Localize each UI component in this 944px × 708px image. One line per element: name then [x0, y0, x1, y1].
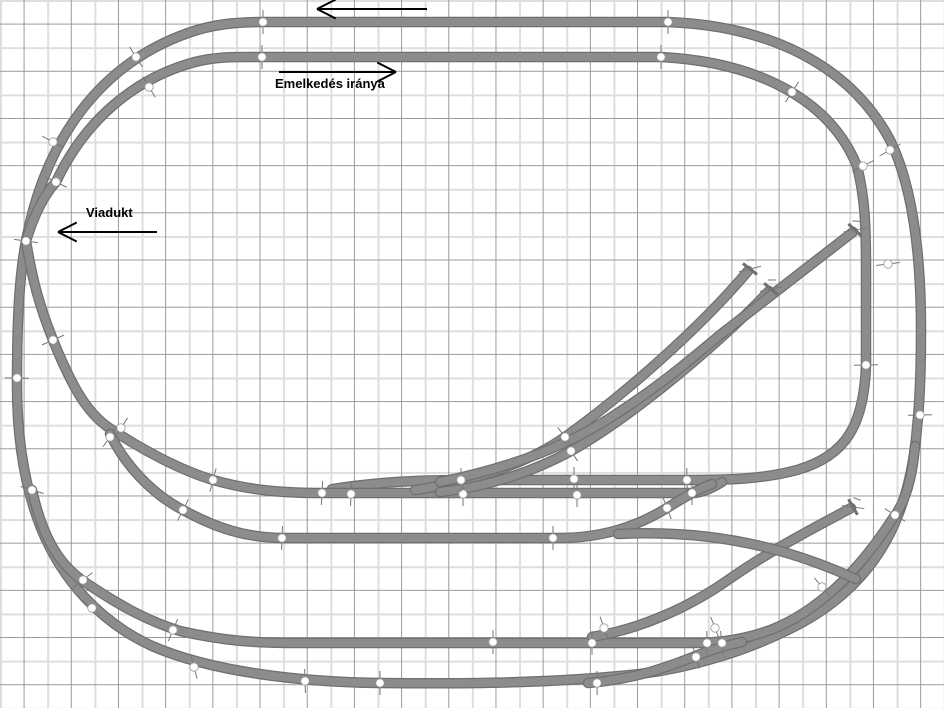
track-joint[interactable] — [5, 374, 29, 383]
track-joint[interactable] — [854, 361, 878, 370]
track-joint[interactable] — [657, 45, 665, 69]
incline-direction-label[interactable]: Emelkedés iránya — [275, 76, 385, 91]
track-joint[interactable] — [300, 669, 309, 693]
track-siding-3[interactable] — [440, 232, 853, 482]
track-joint[interactable] — [258, 45, 266, 69]
arrow-viaduct[interactable] — [58, 222, 157, 241]
track-joint[interactable] — [14, 235, 39, 247]
track-joint[interactable] — [259, 10, 267, 34]
track-descent-to-station-1[interactable] — [26, 241, 722, 493]
track-joint[interactable] — [277, 526, 286, 550]
track-plan-drawing — [0, 0, 944, 708]
track-siding-2[interactable] — [440, 291, 769, 492]
track-plan-canvas[interactable]: Emelkedés iránya Viadukt — [0, 0, 944, 708]
track-joint[interactable] — [376, 671, 384, 695]
track-joint[interactable] — [664, 10, 672, 34]
track-joint[interactable] — [317, 481, 327, 505]
track-outer-loop[interactable] — [17, 22, 921, 683]
viaduct-label[interactable]: Viadukt — [86, 205, 133, 220]
track-siding-1[interactable] — [415, 271, 748, 490]
arrow-left-top[interactable] — [317, 0, 427, 19]
track-joint[interactable] — [489, 630, 497, 654]
track-joint[interactable] — [908, 411, 932, 420]
track-joint[interactable] — [876, 258, 901, 269]
track-joint[interactable] — [549, 526, 557, 550]
